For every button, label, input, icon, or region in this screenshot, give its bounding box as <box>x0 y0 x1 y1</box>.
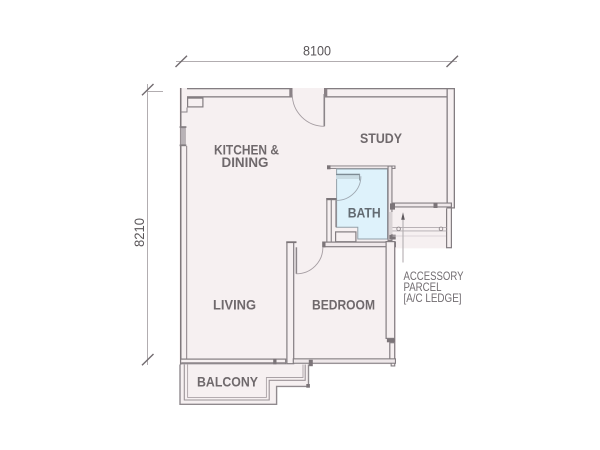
svg-text:8210: 8210 <box>131 218 147 247</box>
svg-text:BATH: BATH <box>348 205 381 221</box>
svg-text:8100: 8100 <box>303 43 331 59</box>
svg-text:LIVING: LIVING <box>213 297 256 313</box>
svg-text:[A/C LEDGE]: [A/C LEDGE] <box>404 291 462 305</box>
svg-text:BALCONY: BALCONY <box>197 373 259 389</box>
svg-text:BEDROOM: BEDROOM <box>312 297 375 313</box>
svg-text:DINING: DINING <box>222 154 269 170</box>
svg-text:STUDY: STUDY <box>360 130 403 146</box>
